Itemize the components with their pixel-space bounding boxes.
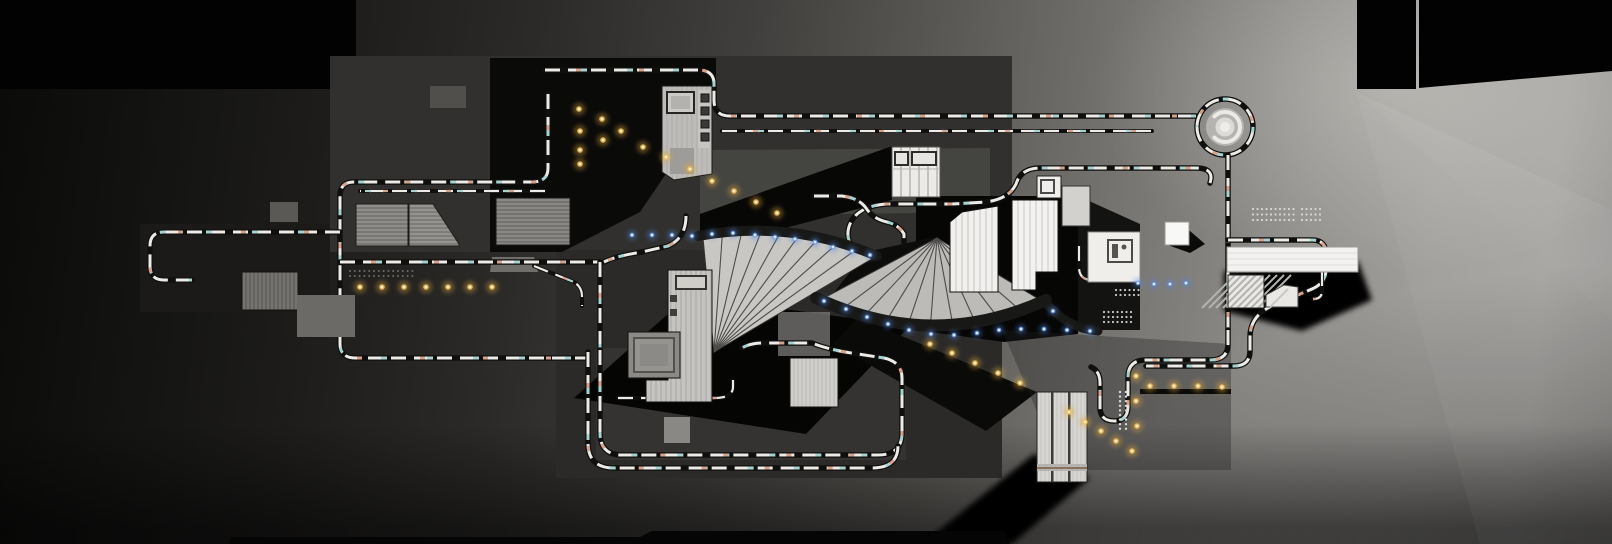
plaza-dots-a <box>1252 208 1295 221</box>
street-light-yellow <box>1110 435 1122 447</box>
street-light-yellow <box>1130 395 1142 407</box>
street-light-yellow <box>486 281 498 293</box>
box-north <box>430 86 466 108</box>
street-light-blue <box>1181 278 1191 288</box>
street-light-blue <box>810 237 820 247</box>
street-light-blue <box>1048 306 1058 316</box>
street-light-yellow <box>1192 380 1204 392</box>
street-light-yellow <box>1144 380 1156 392</box>
block-roof-northeast-b <box>1419 0 1612 88</box>
rib-west-a <box>356 204 408 246</box>
rib-southwest <box>242 272 298 310</box>
block-northeast <box>1062 186 1090 226</box>
street-light-blue <box>1039 324 1049 334</box>
architectural-site-plan <box>0 0 1612 544</box>
street-light-yellow <box>597 134 609 146</box>
shed-south <box>1037 392 1087 482</box>
street-light-yellow <box>615 125 627 137</box>
box-west <box>270 202 298 222</box>
court-mid <box>628 332 680 378</box>
street-light-yellow <box>573 103 585 115</box>
street-light-blue <box>904 325 914 335</box>
street-light-blue <box>790 234 800 244</box>
street-light-blue <box>1085 326 1095 336</box>
street-light-blue <box>750 230 760 240</box>
street-light-blue <box>667 230 677 240</box>
street-light-yellow <box>1168 380 1180 392</box>
roundabout-core <box>1220 122 1230 132</box>
strip-house-south <box>790 358 838 407</box>
street-light-blue <box>1016 324 1026 334</box>
cube-east <box>1165 222 1189 245</box>
street-light-blue <box>819 296 829 306</box>
tower-west <box>950 206 998 292</box>
street-light-yellow <box>398 281 410 293</box>
street-light-yellow <box>442 281 454 293</box>
rib-west-c <box>496 198 570 245</box>
street-light-blue <box>883 319 893 329</box>
street-light-blue <box>862 312 872 322</box>
street-light-yellow <box>684 163 696 175</box>
zone-southeast <box>1002 330 1231 470</box>
street-light-yellow <box>924 338 936 350</box>
plaza-dots-b <box>1301 208 1321 221</box>
street-light-yellow <box>354 281 366 293</box>
street-light-yellow <box>574 125 586 137</box>
street-light-yellow <box>946 347 958 359</box>
street-light-blue <box>707 229 717 239</box>
roundabout <box>1206 108 1244 146</box>
site-plan-canvas <box>0 0 1612 544</box>
street-light-yellow <box>574 144 586 156</box>
street-light-blue <box>841 304 851 314</box>
street-light-yellow <box>376 281 388 293</box>
street-light-blue <box>647 230 657 240</box>
street-light-yellow <box>420 281 432 293</box>
bar-building <box>1227 247 1358 272</box>
block-roof-northwest <box>0 0 356 89</box>
street-light-yellow <box>1014 377 1026 389</box>
street-light-blue <box>972 328 982 338</box>
street-light-blue <box>949 330 959 340</box>
court-house <box>1088 232 1140 282</box>
street-light-blue <box>1165 279 1175 289</box>
street-light-yellow <box>637 141 649 153</box>
street-light-blue <box>994 325 1004 335</box>
street-light-yellow <box>1216 381 1228 393</box>
street-light-yellow <box>728 185 740 197</box>
street-light-yellow <box>464 281 476 293</box>
street-light-blue <box>1062 325 1072 335</box>
street-light-yellow <box>706 175 718 187</box>
window-dots-west <box>349 270 413 277</box>
street-light-yellow <box>1130 370 1142 382</box>
street-light-yellow <box>1131 420 1143 432</box>
street-light-yellow <box>992 367 1004 379</box>
street-light-blue <box>627 230 637 240</box>
street-light-blue <box>687 231 697 241</box>
box-mid <box>297 295 355 337</box>
street-light-yellow <box>1063 406 1075 418</box>
street-light-blue <box>828 242 838 252</box>
box-south <box>664 417 690 443</box>
street-light-blue <box>728 228 738 238</box>
street-light-blue <box>1149 279 1159 289</box>
roof-cube <box>1037 176 1061 198</box>
street-light-yellow <box>750 196 762 208</box>
street-light-yellow <box>1079 416 1091 428</box>
street-light-yellow <box>771 207 783 219</box>
street-light-blue <box>770 232 780 242</box>
grid-house <box>892 147 940 197</box>
ground-band-south <box>230 531 1010 544</box>
street-light-blue <box>847 246 857 256</box>
block-roof-northeast-a <box>1357 0 1416 89</box>
street-light-yellow <box>574 158 586 170</box>
street-light-blue <box>865 250 875 260</box>
street-light-yellow <box>660 151 672 163</box>
street-light-yellow <box>1126 445 1138 457</box>
street-light-blue <box>1133 278 1143 288</box>
street-light-yellow <box>596 113 608 125</box>
street-light-yellow <box>969 357 981 369</box>
street-light-yellow <box>1095 425 1107 437</box>
street-light-blue <box>926 329 936 339</box>
